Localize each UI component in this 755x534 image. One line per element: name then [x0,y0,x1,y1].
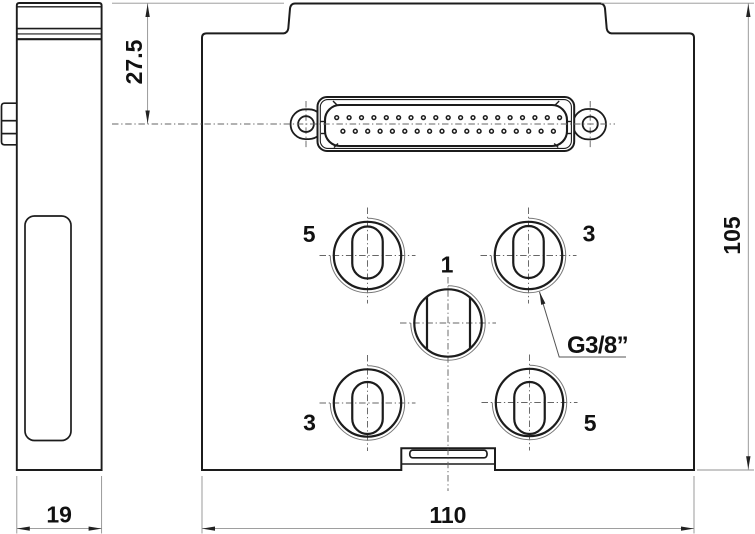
svg-text:27.5: 27.5 [121,39,147,84]
svg-text:110: 110 [429,502,466,528]
svg-text:G3/8”: G3/8” [567,332,628,359]
svg-text:19: 19 [46,502,72,528]
svg-text:3: 3 [303,410,316,436]
svg-text:105: 105 [719,216,745,255]
svg-text:5: 5 [303,221,316,247]
svg-text:5: 5 [584,410,597,436]
svg-text:1: 1 [441,252,454,278]
svg-text:3: 3 [583,221,596,247]
